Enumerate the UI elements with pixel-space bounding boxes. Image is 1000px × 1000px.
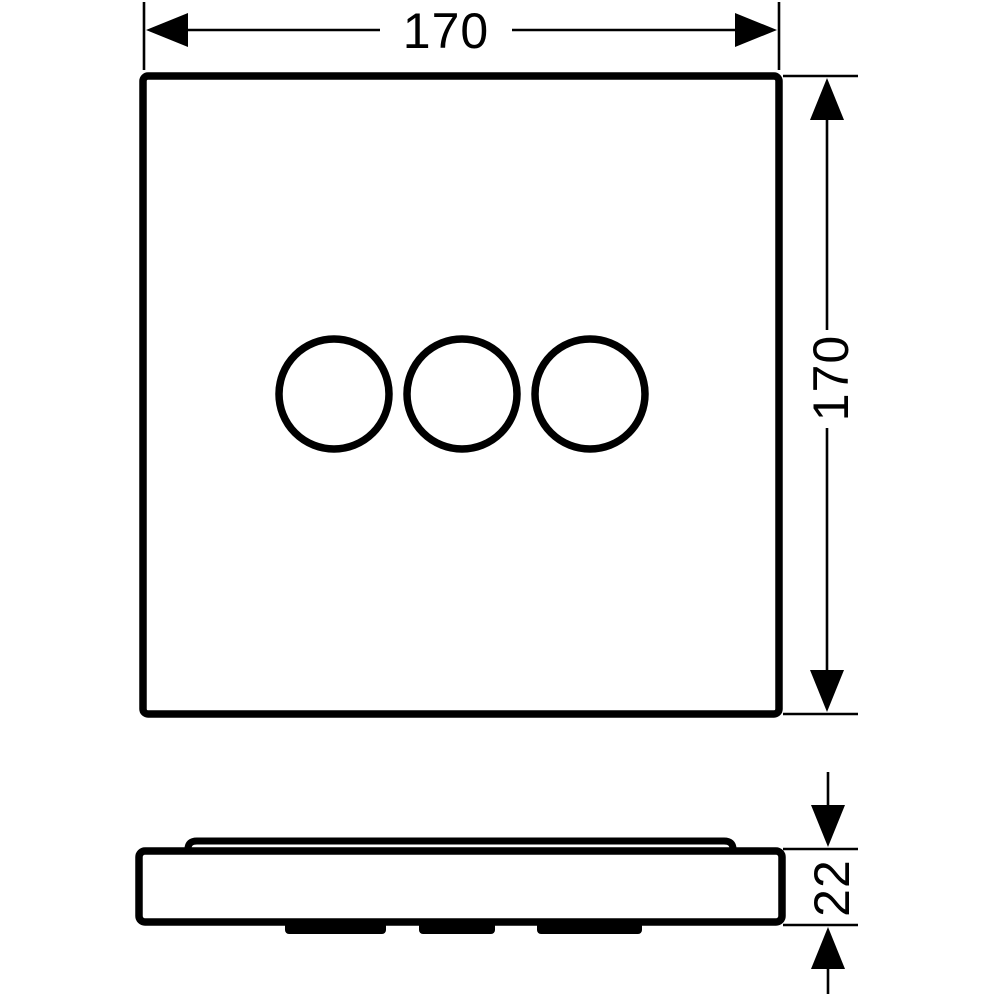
handle-circle-left [279, 339, 389, 449]
thickness-dimension: 22 [783, 772, 860, 994]
arrowhead-up-icon [810, 78, 844, 120]
handle-circle-right [535, 339, 645, 449]
arrowhead-up-icon [811, 927, 845, 969]
dimension-drawing: 170 170 22 [0, 0, 1000, 1000]
width-dimension-label: 170 [403, 3, 489, 59]
arrowhead-left-icon [146, 13, 188, 47]
arrowhead-right-icon [735, 13, 777, 47]
height-dimension-label: 170 [803, 335, 859, 421]
technical-drawing-canvas: 170 170 22 [0, 0, 1000, 1000]
width-dimension: 170 [144, 2, 779, 70]
height-dimension: 170 [783, 76, 859, 714]
arrowhead-down-icon [810, 670, 844, 712]
side-view-rear-detail-center [419, 922, 495, 934]
arrowhead-down-icon [811, 805, 845, 847]
side-view-rear-detail-left [285, 922, 386, 934]
side-view-plate-outline [139, 851, 782, 922]
side-view-rear-detail-right [537, 922, 642, 934]
handle-circle-center [407, 339, 517, 449]
thickness-dimension-label: 22 [804, 859, 860, 917]
